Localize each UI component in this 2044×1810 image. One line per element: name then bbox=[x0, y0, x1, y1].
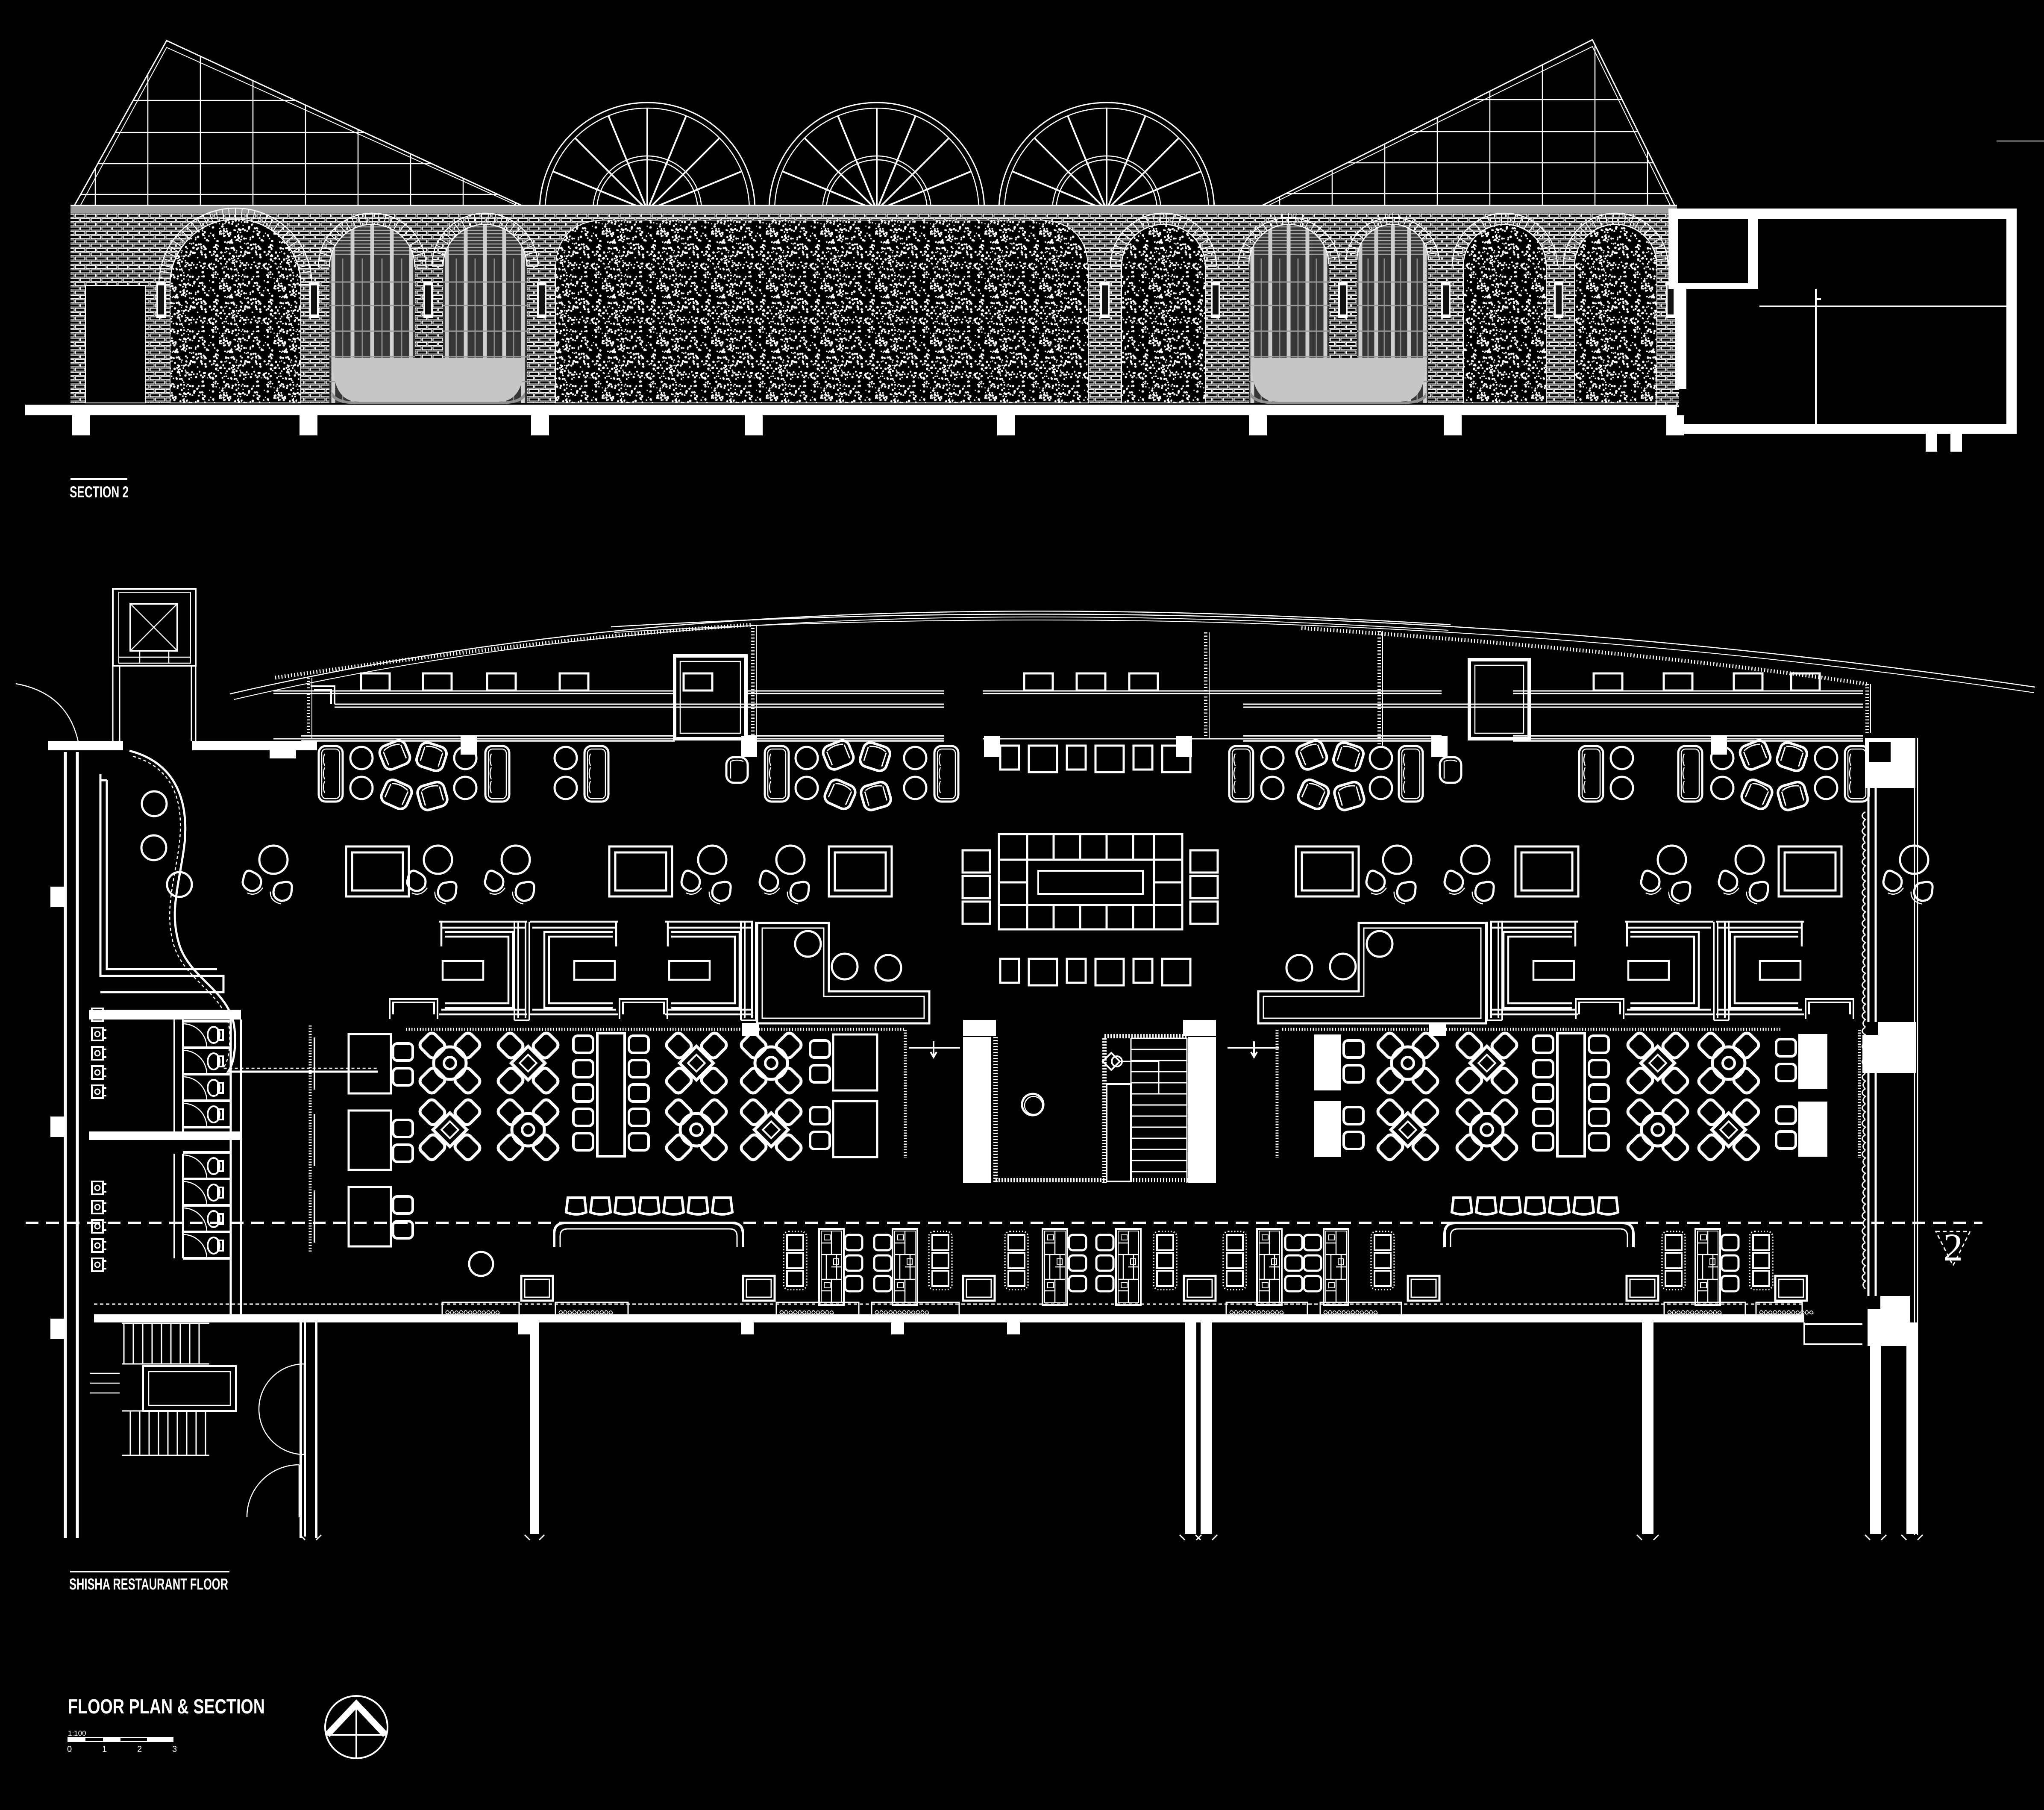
svg-text:0: 0 bbox=[67, 1745, 72, 1754]
svg-text:2: 2 bbox=[137, 1745, 142, 1754]
svg-text:FLOOR PLAN & SECTION: FLOOR PLAN & SECTION bbox=[68, 1695, 265, 1718]
svg-text:1: 1 bbox=[102, 1745, 107, 1754]
svg-text:3: 3 bbox=[172, 1745, 177, 1754]
svg-text:SECTION 2: SECTION 2 bbox=[70, 483, 129, 501]
svg-text:SHISHA RESTAURANT FLOOR: SHISHA RESTAURANT FLOOR bbox=[69, 1575, 228, 1593]
svg-text:2: 2 bbox=[1943, 1225, 1963, 1269]
svg-text:1:100: 1:100 bbox=[68, 1729, 86, 1737]
